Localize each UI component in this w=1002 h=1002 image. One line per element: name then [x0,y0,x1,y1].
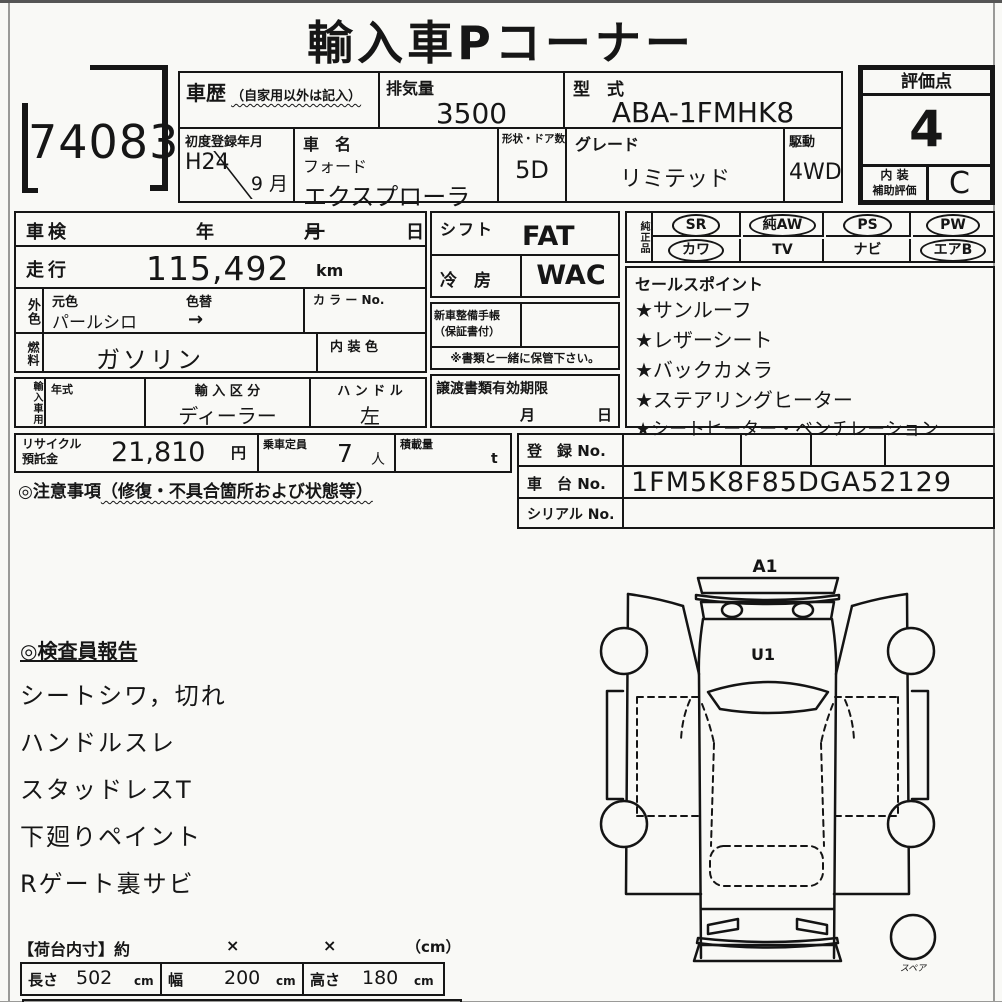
pillar-seam-left-inner [702,704,714,743]
recycle-label-2: 預託金 [22,452,81,467]
service-book-label: 新車整備手帳 [434,307,518,323]
car-maker: フォード [303,153,489,177]
model-year-label: 年式 [51,381,73,397]
wheel-front-right [888,628,934,674]
recycle-label: リサイクル 預託金 [22,437,81,467]
score-value: 4 [863,96,990,164]
cargo-dims-title: 【荷台内寸】約 [18,940,130,959]
handle-value: 左 [311,400,429,429]
exterior-color-value: パールシロ [52,308,137,333]
equipment-cell: ナビ [826,239,911,261]
mileage-value: 115,492 [146,249,289,288]
interior-score-label-1: 内 装 [863,167,926,184]
pillar-seam-left-outer [681,700,690,740]
car-condition-diagram: A1 U1 スペア [595,556,995,988]
equipment-cell: カワ [653,239,741,261]
interior-score-label-2: 補助評価 [863,184,926,198]
wheel-rear-left [601,801,647,847]
cargo-dims-x1: × [226,936,239,955]
shift-label: シフト [440,216,494,240]
interior-score-value: C [929,164,990,200]
sales-point-item: ★バックカメラ [635,355,985,385]
recycle-unit: 円 [231,442,246,463]
cargo-dims-unit: （cm） [406,936,461,957]
cargo-dims-header: 【荷台内寸】約 × × （cm） [18,936,448,960]
pillar-seam-right-outer [845,700,854,740]
rocker-strip-right [912,691,928,799]
color-no-label: カ ラ ー No. [313,291,384,308]
roof-edge-left-dashed [711,743,714,846]
exterior-color-row: 外色 元色 色替 パールシロ → カ ラ ー No. [14,287,427,334]
width-unit: cm [276,974,296,988]
cargo-dims-x2: × [323,936,336,955]
body-doors-value: 5D [502,156,562,184]
side-panel-right-top [852,594,907,606]
sales-points-box: セールスポイント ★サンルーフ ★レザーシート ★バックカメラ ★ステアリングヒ… [625,266,995,428]
score-box: 評価点 4 内 装 補助評価 C [858,65,995,205]
chassis-value: 1FM5K8F85DGA52129 [631,467,952,498]
numbers-box: 登 録 No. 車 台 No. 1FM5K8F85DGA52129 シリアル N… [517,433,995,529]
displacement-label: 排気量 [386,75,557,99]
headlight-left [722,603,742,617]
ac-value: WAC [520,256,620,296]
drive-label: 駆動 [789,131,837,150]
repaint-arrow: → [188,309,203,330]
service-book-sublabel: （保証書付） [434,323,518,339]
equipment-label: 純正品 [627,213,653,261]
diagram-mark-u1: U1 [751,645,775,664]
equipment-item-navi: ナビ [842,241,894,260]
registration-row: 登 録 No. [519,435,993,467]
fuel-value: ガソリン [96,340,204,375]
drive-value: 4WD [789,160,837,185]
spare-label: スペア [900,964,927,974]
transfer-day: 日 [597,404,612,425]
wheel-front-left [601,628,647,674]
drive-cell: 駆動 4WD [783,127,843,203]
pillar-seam-right-inner [821,704,833,743]
inspector-item: スタッドレスT [20,770,227,805]
height-unit: cm [414,974,434,988]
fuel-row: 燃料 ガソリン 内 装 色 [14,332,427,373]
inspector-report: ◎検査員報告 シートシワ，切れ ハンドルスレ スタッドレスT 下廻りペイント R… [20,635,227,899]
registration-divider [810,435,812,465]
history-label: 車歴 [186,81,226,105]
transfer-month: 月 [520,404,535,425]
recycle-row: リサイクル 預託金 21,810 円 乗車定員 7 人 積載量 t [14,433,512,473]
import-category-label: 輸 入 区 分 [146,380,309,399]
equipment-cell: PW [913,213,993,237]
inspector-item: ハンドルスレ [20,723,227,758]
car-name-cell: 車 名 フォード エクスプローラー [293,127,499,203]
width-cell: 幅 200 cm [162,964,304,994]
repaint-label: 色替 [186,291,212,310]
windshield [708,682,828,713]
interior-color-cell: 内 装 色 [316,334,429,371]
taillight-right [797,919,827,934]
length-value: 502 [76,967,112,989]
spare-tire [891,915,935,959]
capacity-unit: 人 [371,449,385,469]
height-value: 180 [362,967,398,989]
equipment-cell: 純AW [743,213,824,237]
auction-sheet: 輸入車Pコーナー 74083 車歴 （自家用以外は記入） 排気量 3500 型 … [0,0,1002,1002]
door-outline-left-dashed [637,697,699,816]
exterior-color-label: 外色 [16,289,44,332]
height-label: 高さ [310,969,340,990]
recycle-label-1: リサイクル [22,437,81,452]
sales-point-item: ★レザーシート [635,325,985,355]
rocker-strip-left [607,691,623,799]
import-use-label: 輸入車用 [16,379,46,426]
inspector-item: Rゲート裏サビ [20,864,227,899]
chassis-divider [622,467,624,497]
mileage-row: 走行 115,492 km [14,245,427,289]
equipment-item-sr: SR [672,214,721,237]
width-value: 200 [224,967,260,989]
width-label: 幅 [168,969,183,990]
ac-label: 冷 房 [440,266,491,291]
shaken-year: 年 [196,218,214,244]
history-cell: 車歴 （自家用以外は記入） [178,71,380,129]
gap-line-left [683,606,699,674]
transfer-docs-cell: 譲渡書類有効期限 月 日 [430,374,620,428]
diagram-mark-a1: A1 [753,557,778,577]
equipment-item-airbag: エアB [920,239,987,262]
serial-divider [622,499,624,527]
grade-value: リミテッド [575,161,775,193]
chassis-row: 車 台 No. 1FM5K8F85DGA52129 [519,467,993,499]
shaken-row: 車検 年 月 日 [14,211,427,247]
equipment-item-alloy: 純AW [749,214,817,237]
gap-line-right [836,606,852,674]
load-label: 積載量 [400,436,433,452]
equipment-cell: PS [826,213,911,237]
shaken-day: 日 [406,218,424,244]
import-category-cell: 輸 入 区 分 ディーラー [144,379,309,426]
cargo-dims-table: 長さ 502 cm 幅 200 cm 高さ 180 cm [20,962,445,996]
displacement-value: 3500 [386,97,557,130]
roof-edge-right-dashed [821,743,824,846]
score-label: 評価点 [863,70,990,96]
shaken-month: 月 [304,218,322,244]
equipment-item-leather: カワ [668,239,724,262]
registration-label: 登 録 No. [527,440,606,461]
length-label: 長さ [28,969,58,990]
height-cell: 高さ 180 cm [304,964,443,994]
fuel-label: 燃料 [16,334,44,371]
capacity-value: 7 [337,439,353,468]
front-bumper [698,578,838,593]
registration-divider [622,435,624,465]
grade-cell: グレード リミテッド [565,127,785,203]
shaken-label: 車検 [26,218,70,244]
handle-label: ハ ン ド ル [311,380,429,399]
sales-point-item: ★ステアリングヒーター [635,385,985,415]
grade-label: グレード [575,131,775,155]
history-note: （自家用以外は記入） [231,89,361,104]
caution-prefix: ◎注意事項 [18,482,101,502]
sales-points-title: セールスポイント [635,271,985,295]
car-name-label: 車 名 [303,131,489,155]
ac-cell: 冷 房 WAC [430,254,620,298]
load-unit: t [491,451,498,467]
serial-row: シリアル No. [519,499,993,527]
inspector-title: ◎検査員報告 [20,635,227,664]
equipment-item-pw: PW [926,214,980,237]
displacement-cell: 排気量 3500 [378,71,565,129]
headlight-right [793,603,813,617]
service-book-label-cell: 新車整備手帳 （保証書付） [432,304,522,346]
inspector-item: 下廻りペイント [20,817,227,852]
equipment-cell: エアB [913,239,993,261]
side-panel-left-top [628,594,683,606]
equipment-box: 純正品 SR 純AW PS PW カワ TV ナビ エアB [625,211,995,263]
caution-note: （修復・不具合箇所および状態等） [101,482,373,502]
registration-divider [740,435,742,465]
first-registration-cell: 初度登録年月 H24 9 月 [178,127,295,203]
serial-label: シリアル No. [527,504,614,524]
page-title: 輸入車Pコーナー [0,7,1002,73]
length-unit: cm [134,974,154,988]
interior-score-label-cell: 内 装 補助評価 [863,164,929,200]
shift-value: FAT [522,221,575,252]
model-code-cell: 型 式 ABA-1FMHK8 [563,71,843,129]
caution-line: ◎注意事項（修復・不具合箇所および状態等） [18,477,373,502]
color-no-cell: カ ラ ー No. [303,289,429,332]
mileage-unit: km [316,261,343,280]
header-table: 車歴 （自家用以外は記入） 排気量 3500 型 式 ABA-1FMHK8 初度… [178,71,843,203]
shift-cell: シフト FAT [430,211,620,256]
import-category-value: ディーラー [146,400,309,429]
body-side-left [699,619,703,958]
sales-point-item: ★サンルーフ [635,295,985,325]
model-year-cell: 年式 [46,379,144,426]
lot-number: 74083 [28,115,160,169]
door-outline-right-dashed [835,697,898,816]
equipment-item-ps: PS [843,214,891,237]
equipment-cell: SR [653,213,741,237]
first-registration-label: 初度登録年月 [185,131,288,150]
handle-cell: ハ ン ド ル 左 [309,379,429,426]
capacity-label: 乗車定員 [263,436,307,452]
chassis-label: 車 台 No. [527,473,606,494]
body-doors-cell: 形状・ドア数 5D [497,127,567,203]
body-side-right [832,619,836,958]
service-book-note: ※書類と一緒に保管下さい。 [432,346,618,368]
rear-window-dashed [710,846,823,886]
wheel-rear-right [888,801,934,847]
mileage-label: 走行 [26,256,70,282]
registration-divider [884,435,886,465]
taillight-left [708,919,738,934]
lot-bracket-foot [150,185,168,191]
equipment-cell: TV [743,239,824,261]
import-row: 輸入車用 年式 輸 入 区 分 ディーラー ハ ン ド ル 左 [14,377,427,428]
equipment-item-tv: TV [760,241,804,260]
model-code-value: ABA-1FMHK8 [573,96,833,129]
transfer-docs-label: 譲渡書類有効期限 [432,376,618,400]
capacity-cell: 乗車定員 7 人 [257,435,394,471]
interior-color-label: 内 装 色 [330,336,378,355]
page-edge-left [8,3,10,1002]
recycle-value: 21,810 [111,437,205,468]
service-book-cell: 新車整備手帳 （保証書付） ※書類と一緒に保管下さい。 [430,302,620,370]
load-cell: 積載量 t [394,435,510,471]
body-doors-label: 形状・ドア数 [502,131,562,146]
inspector-item: シートシワ，切れ [20,676,227,711]
length-cell: 長さ 502 cm [22,964,162,994]
